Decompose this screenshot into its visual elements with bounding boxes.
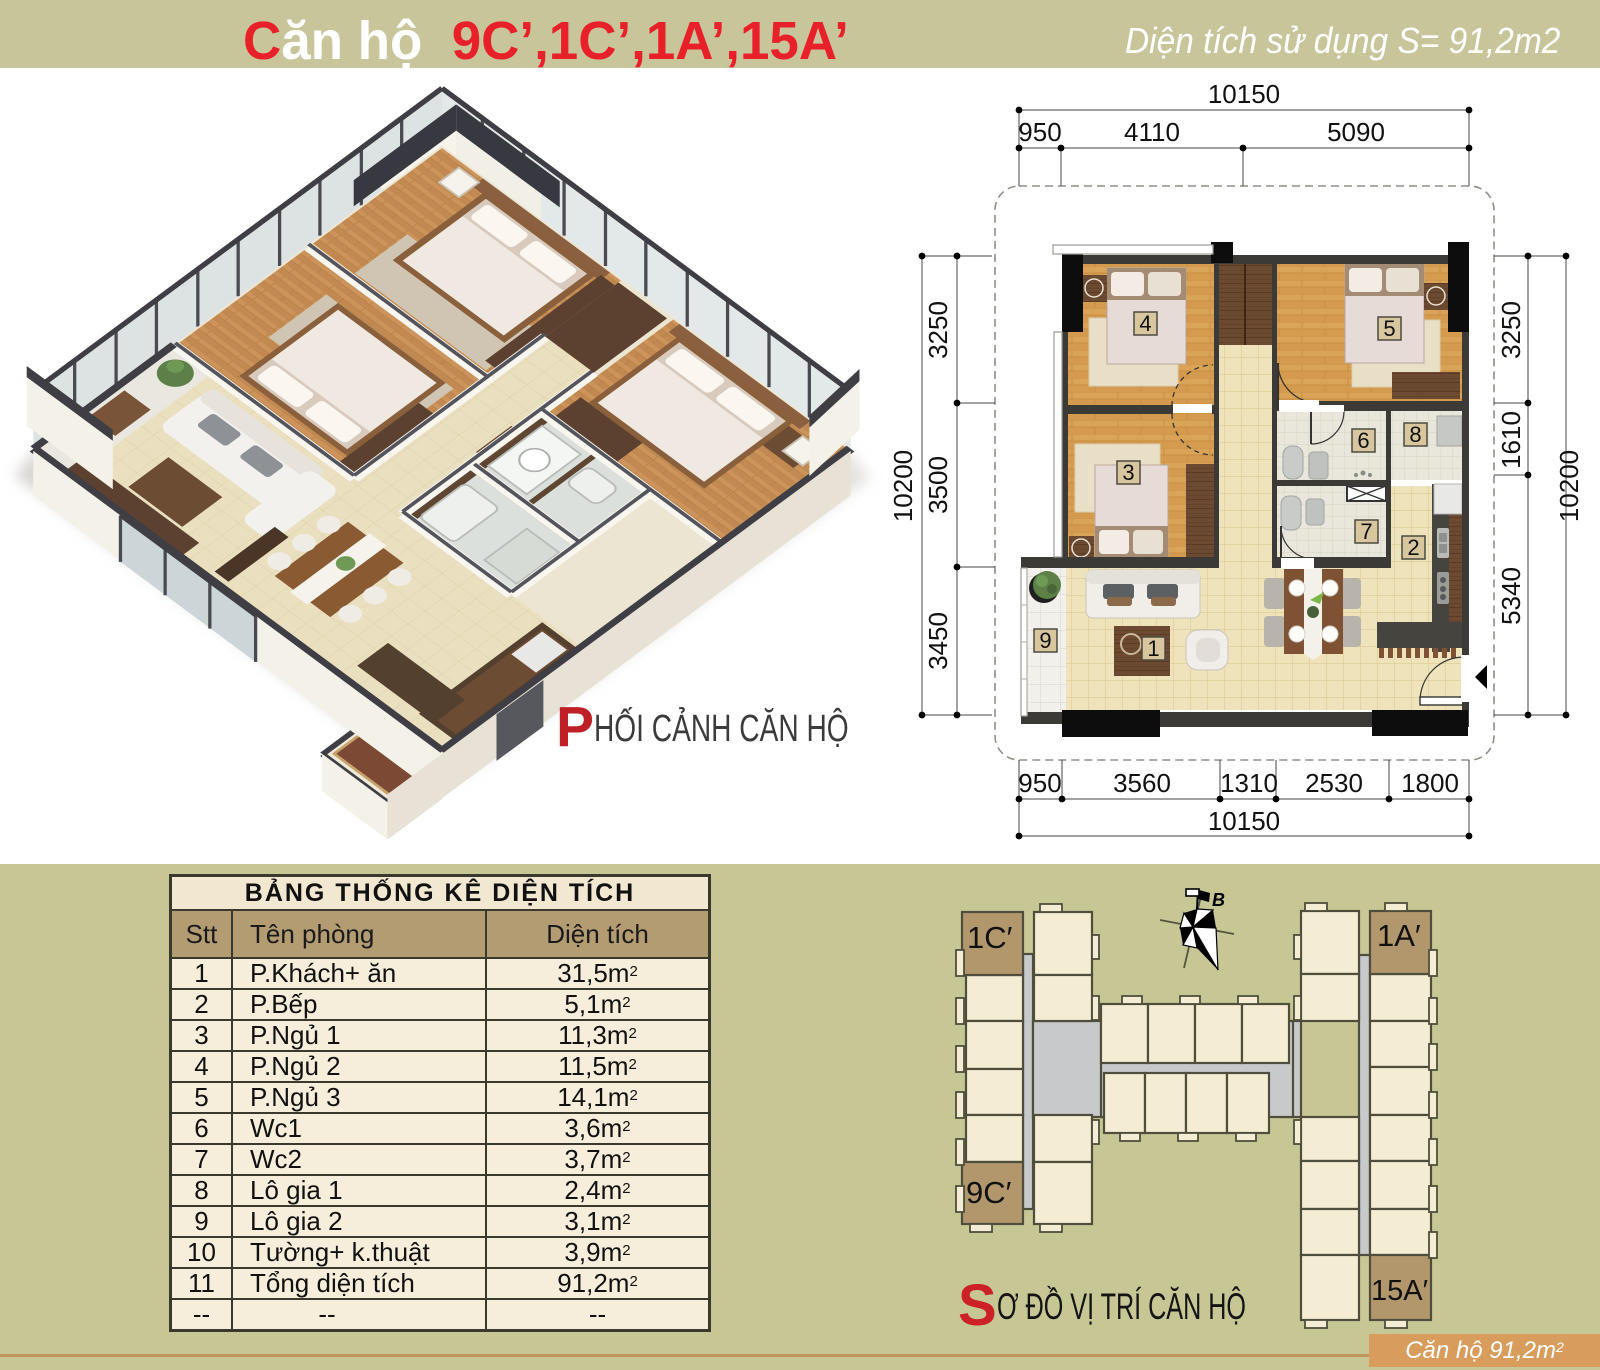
svg-text:3560: 3560: [1113, 768, 1171, 798]
svg-text:1310: 1310: [1220, 768, 1278, 798]
svg-text:3450: 3450: [923, 612, 953, 670]
svg-text:1C′: 1C′: [967, 920, 1013, 955]
svg-text:950: 950: [1018, 768, 1061, 798]
svg-text:3250: 3250: [1496, 301, 1526, 359]
svg-text:3500: 3500: [923, 456, 953, 514]
svg-text:7: 7: [1360, 519, 1372, 544]
svg-text:3250: 3250: [923, 301, 953, 359]
svg-text:5: 5: [1383, 316, 1395, 341]
svg-text:1: 1: [1147, 636, 1159, 661]
svg-text:1800: 1800: [1401, 768, 1459, 798]
svg-text:3: 3: [1122, 460, 1134, 485]
svg-text:950: 950: [1018, 117, 1061, 147]
svg-text:B: B: [1212, 890, 1225, 910]
svg-text:10150: 10150: [1208, 79, 1280, 109]
svg-text:5340: 5340: [1496, 567, 1526, 625]
svg-text:1A′: 1A′: [1377, 918, 1421, 953]
svg-text:9C′: 9C′: [966, 1175, 1012, 1210]
svg-text:1610: 1610: [1496, 411, 1526, 469]
svg-text:5090: 5090: [1327, 117, 1385, 147]
svg-text:10200: 10200: [1554, 450, 1584, 522]
svg-text:2: 2: [1407, 535, 1419, 560]
svg-text:4: 4: [1139, 311, 1151, 336]
svg-text:2530: 2530: [1305, 768, 1363, 798]
svg-text:6: 6: [1357, 428, 1369, 453]
svg-text:4110: 4110: [1124, 117, 1180, 147]
svg-text:8: 8: [1409, 422, 1421, 447]
svg-text:10150: 10150: [1208, 806, 1280, 836]
svg-text:10200: 10200: [888, 450, 918, 522]
svg-text:15A′: 15A′: [1371, 1275, 1428, 1307]
svg-text:9: 9: [1039, 628, 1051, 653]
